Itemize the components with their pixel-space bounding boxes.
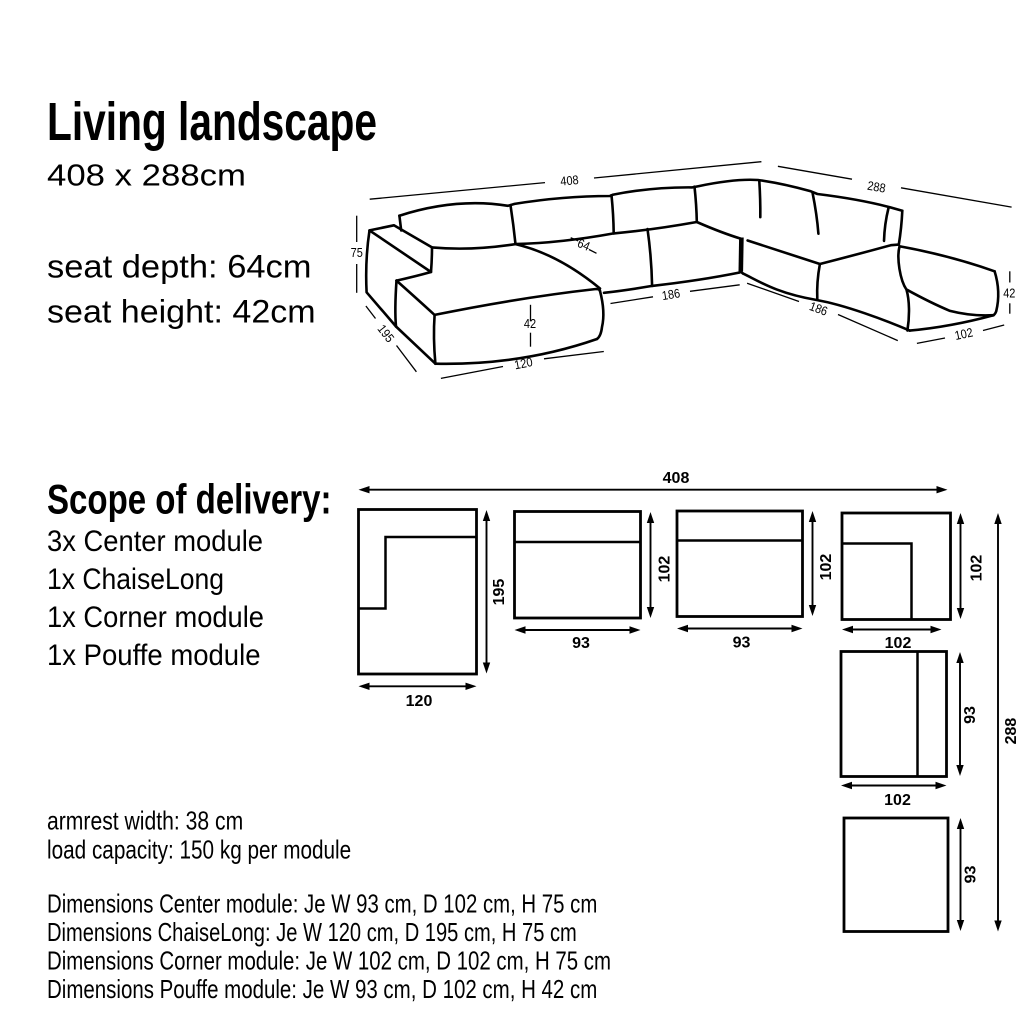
- svg-text:seat height: 42cm: seat height: 42cm: [47, 294, 316, 330]
- svg-text:102: 102: [885, 635, 912, 652]
- svg-text:load capacity: 150 kg per modu: load capacity: 150 kg per module: [47, 835, 351, 865]
- svg-text:120: 120: [406, 693, 433, 710]
- svg-text:Scope of delivery:: Scope of delivery:: [47, 476, 332, 523]
- svg-text:93: 93: [962, 706, 979, 724]
- svg-text:Dimensions Pouffe module: Je W: Dimensions Pouffe module: Je W 93 cm, D …: [47, 974, 597, 1004]
- svg-text:42: 42: [524, 317, 536, 331]
- svg-text:1x Corner module: 1x Corner module: [47, 601, 264, 634]
- svg-text:288: 288: [1003, 718, 1020, 745]
- svg-text:102: 102: [818, 554, 835, 581]
- svg-text:Dimensions Corner module: Je W: Dimensions Corner module: Je W 102 cm, D…: [47, 946, 611, 976]
- svg-text:Dimensions Center module: Je W: Dimensions Center module: Je W 93 cm, D …: [47, 889, 597, 919]
- svg-text:Living landscape: Living landscape: [47, 92, 377, 152]
- svg-text:102: 102: [884, 792, 911, 809]
- svg-text:armrest width: 38 cm: armrest width: 38 cm: [47, 806, 243, 836]
- svg-text:93: 93: [733, 635, 751, 652]
- svg-text:75: 75: [351, 246, 363, 260]
- svg-text:93: 93: [963, 866, 980, 884]
- svg-text:102: 102: [969, 555, 986, 582]
- svg-text:93: 93: [572, 635, 590, 652]
- svg-text:408 x 288cm: 408 x 288cm: [47, 158, 246, 193]
- svg-text:408: 408: [663, 470, 690, 487]
- svg-text:3x Center module: 3x Center module: [47, 525, 263, 558]
- svg-text:1x Pouffe module: 1x Pouffe module: [47, 639, 261, 672]
- svg-text:seat depth: 64cm: seat depth: 64cm: [47, 249, 312, 285]
- svg-text:195: 195: [491, 579, 508, 606]
- svg-text:408: 408: [560, 173, 580, 189]
- svg-text:1x ChaiseLong: 1x ChaiseLong: [47, 563, 224, 596]
- svg-text:186: 186: [661, 286, 681, 303]
- svg-text:102: 102: [657, 556, 674, 583]
- svg-text:42: 42: [1003, 286, 1015, 300]
- svg-text:Dimensions ChaiseLong: Je W 12: Dimensions ChaiseLong: Je W 120 cm, D 19…: [47, 917, 577, 947]
